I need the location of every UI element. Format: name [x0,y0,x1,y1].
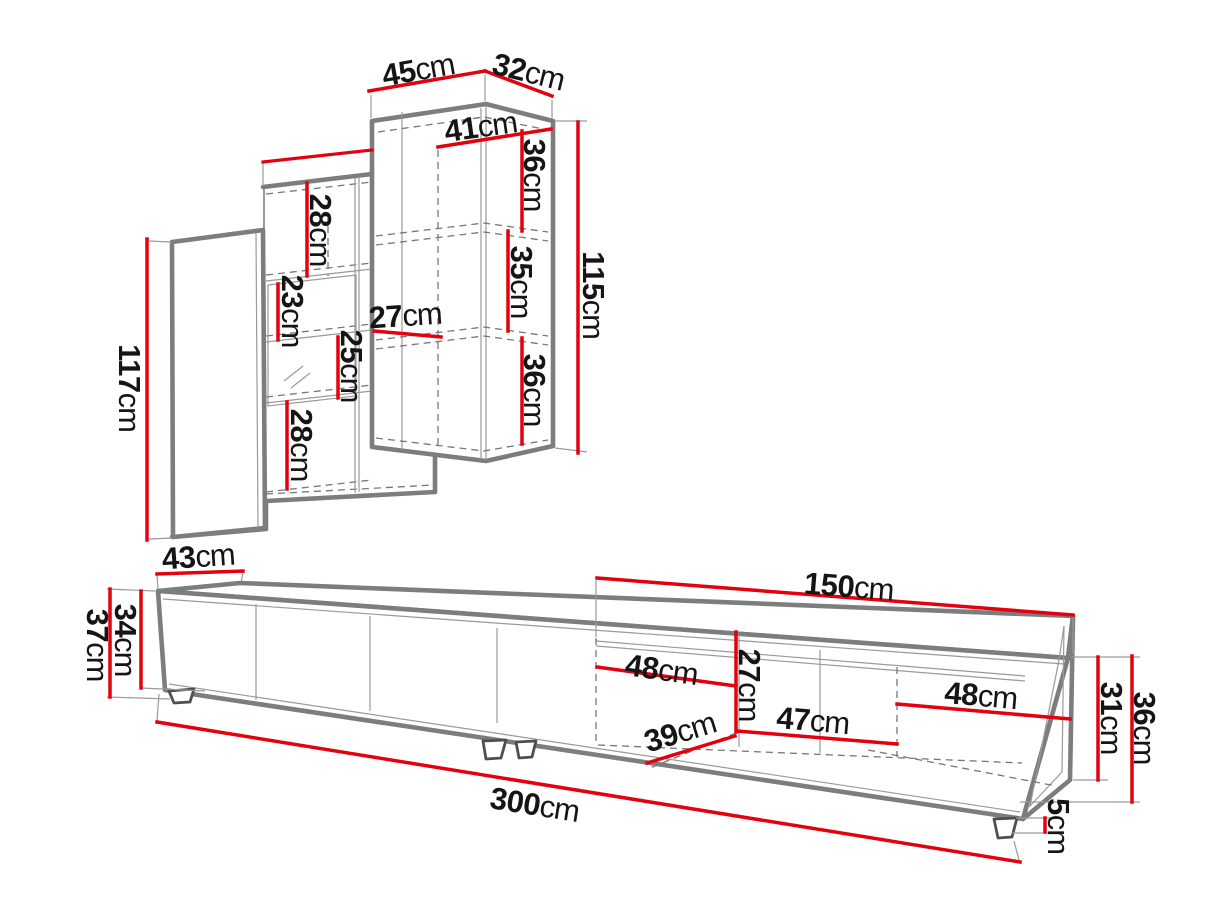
dim-label-wall-comp3: 25cm [334,330,369,403]
dim-label-tv-right-span: 150cm [803,566,895,608]
dim-label-wall-top-depth: 32cm [489,46,568,98]
dim-label-tv-depth: 43cm [161,537,236,577]
dim-label-wall-comp2: 23cm [275,275,310,348]
dim-label-wall-inner-depth: 27cm [368,296,443,336]
dim-label-tv-right-height: 36cm [1127,692,1162,765]
dim-label-wall-shelf-bottom: 36cm [517,354,552,427]
dim-label-wall-comp1: 28cm [303,194,338,267]
dim-label-wall-height-right: 115cm [576,251,611,339]
dim-label-tv-comp-middle: 47cm [775,700,851,741]
tv-stand-leg-right [994,818,1017,838]
tv-stand-leg-mid-b [516,741,536,758]
dim-label-wall-top-width: 45cm [379,46,457,93]
dim-label-wall-height-left: 117cm [112,344,147,432]
tv-stand-leg-mid-a [483,740,506,759]
dim-label-tv-right-inner-height: 31cm [1094,682,1129,755]
left-panel-outline [172,230,265,537]
mid-section-top-edge [263,174,372,187]
dim-label-wall-shelf-top: 36cm [517,139,552,212]
wall-unit-left-panel [172,230,265,537]
dim-label-tv-height-body: 34cm [108,604,143,677]
dim-label-tv-inner-height: 27cm [732,649,767,722]
diagram-canvas: 45cm 32cm 41cm 36cm 35cm 36cm 115cm 117c… [0,0,1231,923]
glass-hatch-marks [284,366,310,388]
furniture-dimension-diagram: 45cm 32cm 41cm 36cm 35cm 36cm 115cm 117c… [0,0,1231,923]
dim-label-tv-comp-right: 48cm [943,675,1019,716]
dim-label-tv-leg-height: 5cm [1041,798,1076,854]
tv-stand-leg-left [169,689,194,703]
mid-section-top-red-edge [263,150,372,162]
dim-label-wall-comp4: 28cm [284,409,319,482]
dim-label-wall-shelf-middle: 35cm [504,246,539,319]
tv-stand-body [158,583,1073,838]
